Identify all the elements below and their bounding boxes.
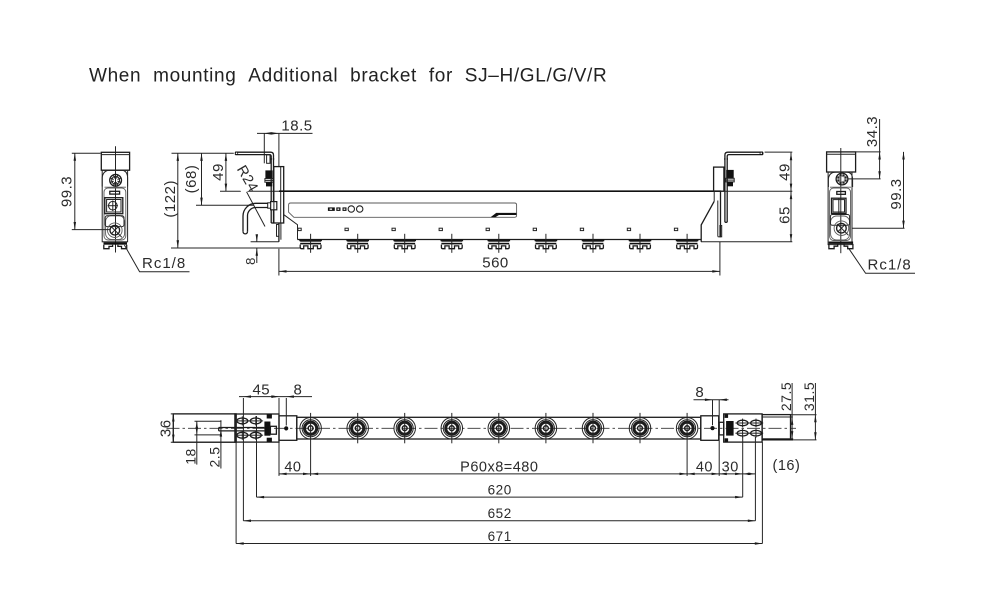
svg-text:Rc1/8: Rc1/8 xyxy=(142,255,186,272)
svg-text:49: 49 xyxy=(210,163,227,181)
svg-text:652: 652 xyxy=(488,506,512,521)
svg-text:8: 8 xyxy=(293,382,302,399)
svg-text:65: 65 xyxy=(776,206,793,224)
svg-text:36: 36 xyxy=(157,419,174,437)
svg-text:560: 560 xyxy=(482,255,509,272)
svg-text:40: 40 xyxy=(284,459,301,475)
svg-text:40: 40 xyxy=(696,459,713,475)
svg-text:45: 45 xyxy=(252,382,270,399)
svg-text:When mounting Additional br: When mounting Additional bracket for SJ–… xyxy=(89,66,607,87)
svg-text:30: 30 xyxy=(722,459,739,475)
svg-text:(16): (16) xyxy=(773,458,801,474)
svg-text:P60x8=480: P60x8=480 xyxy=(460,459,538,475)
svg-text:2.5: 2.5 xyxy=(206,447,222,468)
svg-text:8: 8 xyxy=(695,384,704,401)
svg-text:(122): (122) xyxy=(162,180,179,218)
svg-text:49: 49 xyxy=(776,163,793,181)
svg-text:Rc1/8: Rc1/8 xyxy=(868,257,912,274)
svg-text:27.5: 27.5 xyxy=(778,382,794,411)
svg-text:8: 8 xyxy=(243,257,258,265)
svg-text:34.3: 34.3 xyxy=(864,116,881,147)
svg-text:31.5: 31.5 xyxy=(801,382,817,411)
svg-text:620: 620 xyxy=(488,482,512,497)
svg-text:18.5: 18.5 xyxy=(281,118,312,135)
svg-text:671: 671 xyxy=(488,529,512,544)
svg-text:99.3: 99.3 xyxy=(59,176,76,207)
svg-text:(68): (68) xyxy=(183,165,200,194)
svg-text:99.3: 99.3 xyxy=(888,178,905,209)
svg-text:18: 18 xyxy=(182,448,198,465)
